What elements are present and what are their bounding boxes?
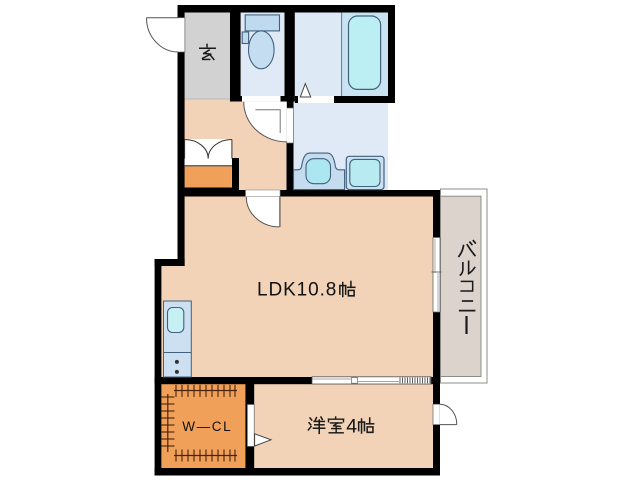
svg-text:LDK10.8: LDK10.8 [257, 280, 337, 301]
svg-text:W—CL: W—CL [182, 419, 232, 434]
svg-text:4: 4 [346, 416, 357, 438]
